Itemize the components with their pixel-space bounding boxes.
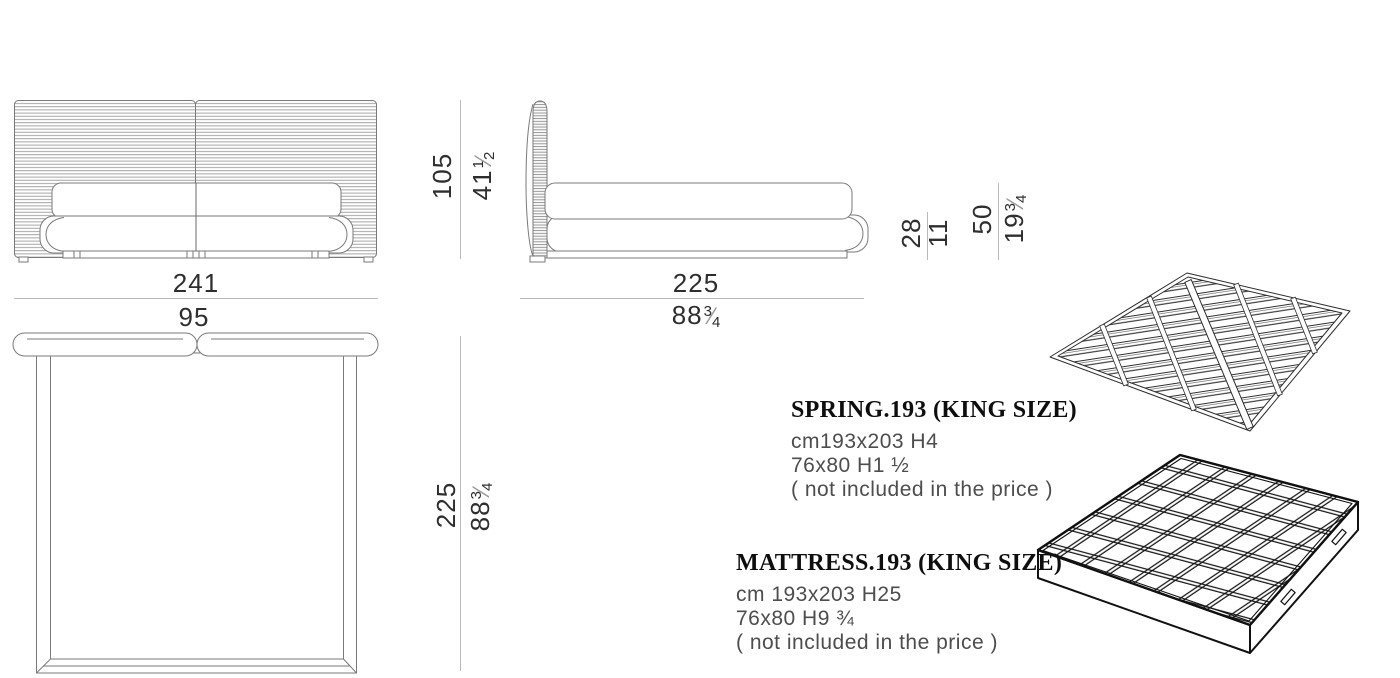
top-frame-outer xyxy=(37,353,357,673)
side-depth-inch-label: 883⁄4 xyxy=(672,302,721,330)
side-headboard-foot xyxy=(530,256,545,262)
top-depth-inch-label: 883⁄4 xyxy=(467,483,495,532)
spring-product-block: SPRING.193 (KING SIZE) cm193x203 H4 76x8… xyxy=(791,397,1077,502)
mattress-product-block: MATTRESS.193 (KING SIZE) cm 193x203 H25 … xyxy=(736,550,1062,655)
bed-spec-sheet: 241 95 225 883⁄4 105 411⁄2 28 11 50 193⁄… xyxy=(0,0,1400,678)
spring-size-cm: cm193x203 H4 xyxy=(791,430,1077,454)
mattress-quilt-diagonal-2 xyxy=(1038,455,1358,625)
side-depth-inch-fraction: 3⁄4 xyxy=(704,302,721,330)
front-headboard-foot-right xyxy=(364,257,373,262)
mattress-size-inch: 76x80 H9 ¾ xyxy=(736,607,1062,631)
spring-note: ( not included in the price ) xyxy=(791,478,1077,502)
top-depth-inch-fraction: 3⁄4 xyxy=(467,483,495,500)
technical-drawing xyxy=(0,0,1400,678)
front-plinth xyxy=(63,251,329,258)
side-mattress xyxy=(545,183,852,219)
mattress-top-height-inch-label: 193⁄4 xyxy=(1001,195,1029,244)
front-headboard-foot-left xyxy=(19,257,28,262)
top-pillow-right xyxy=(197,333,378,356)
front-width-cm-label: 241 xyxy=(173,270,219,296)
bed-height-inch-label: 411⁄2 xyxy=(469,152,497,201)
side-bedframe xyxy=(547,215,868,252)
side-view xyxy=(526,101,868,262)
bed-height-inch-whole: 41 xyxy=(467,169,497,200)
mattress-top-height-inch-whole: 19 xyxy=(999,212,1029,243)
mattress-top-height-inch-fraction: 3⁄4 xyxy=(1001,195,1029,212)
side-headboard xyxy=(533,101,547,258)
front-width-inch-label: 95 xyxy=(179,304,210,330)
side-depth-inch-whole: 88 xyxy=(672,300,703,330)
spring-illustration xyxy=(1050,273,1350,431)
side-depth-cm-label: 225 xyxy=(673,270,719,296)
mattress-top-height-cm-label: 50 xyxy=(969,204,995,235)
mattress-size-cm: cm 193x203 H25 xyxy=(736,583,1062,607)
spring-size-inch: 76x80 H1 ½ xyxy=(791,454,1077,478)
mattress-title: MATTRESS.193 (KING SIZE) xyxy=(736,550,1062,577)
frame-height-cm-label: 28 xyxy=(898,218,924,249)
front-view xyxy=(15,101,377,263)
side-base xyxy=(547,251,847,258)
top-depth-inch-whole: 88 xyxy=(465,500,495,531)
spring-title: SPRING.193 (KING SIZE) xyxy=(791,397,1077,424)
bed-height-inch-fraction: 1⁄2 xyxy=(469,152,497,169)
top-depth-cm-label: 225 xyxy=(433,482,459,528)
mattress-illustration xyxy=(1038,455,1358,653)
side-headboard-profile xyxy=(526,104,533,256)
mattress-note: ( not included in the price ) xyxy=(736,631,1062,655)
top-pillow-left xyxy=(13,333,197,356)
frame-height-inch-label: 11 xyxy=(925,219,951,248)
top-view xyxy=(13,333,378,673)
bed-height-cm-label: 105 xyxy=(429,153,455,199)
